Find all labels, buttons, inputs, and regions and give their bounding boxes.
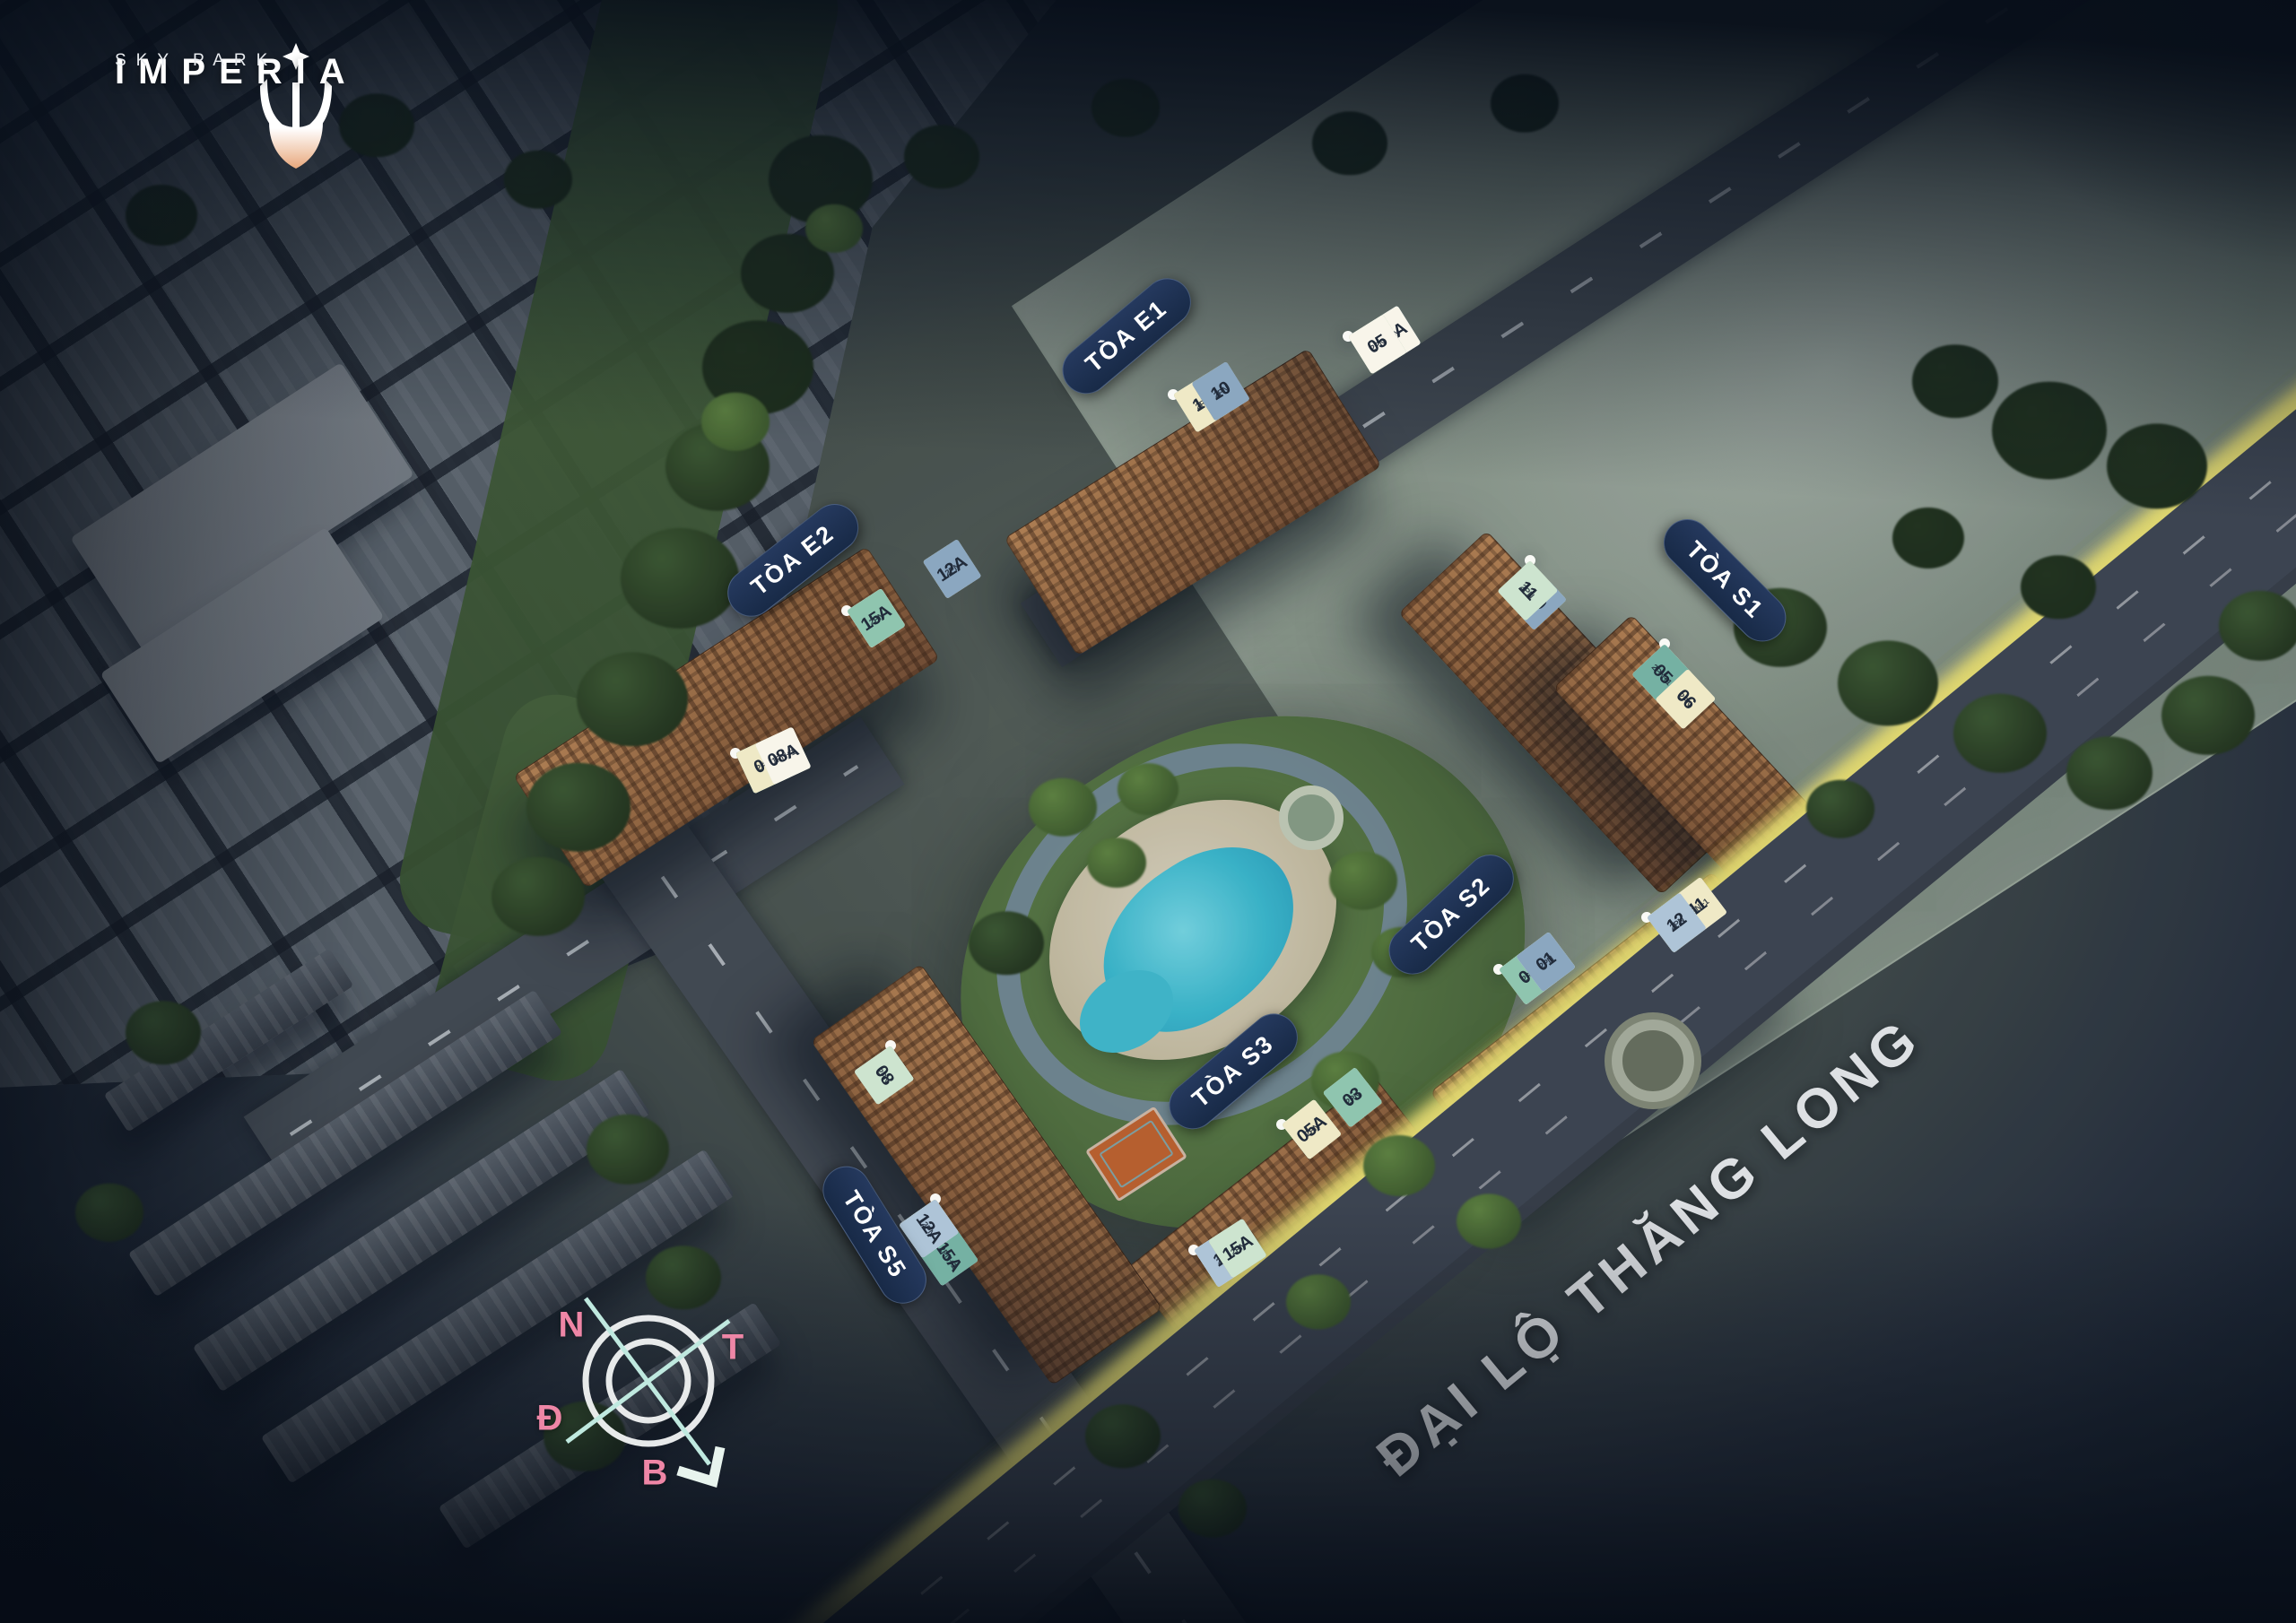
tower-label-S1[interactable]: TÒA S1 <box>1654 509 1796 651</box>
tower-E1-grid-2: 012PN02STU032PN05A2PN092PN082PN+108A1PN+… <box>1341 329 1356 344</box>
unit-grid-overlay: 15A2PN152PN162PN171PN+1182PN12A2PN121PN+… <box>0 0 2296 1623</box>
tower-E2-grid-1: 182PN171PN+1162PN152PN15A2PN102PN11STU12… <box>839 603 855 619</box>
tower-S3-grid-1: 082PN08A1PN+1062PN052PN05A2PN012PN022PN0… <box>1274 1117 1290 1133</box>
unit-S3-03[interactable]: 032PN <box>1322 1067 1382 1128</box>
unit-S5-08[interactable]: 082PN <box>854 1046 914 1105</box>
unit-E2-12A[interactable]: 12A2PN <box>923 539 982 599</box>
tower-label-S2[interactable]: TÒA S2 <box>1379 845 1524 984</box>
masterplan-canvas: ĐẠI LỘ THĂNG LONG IMPERIA SKY PARK <box>0 0 2296 1623</box>
tower-S5-grid-1: 052PN+105A2PN032PN021PN+1012PN+1062PN08A… <box>883 1038 899 1054</box>
tower-E2-grid-2: 05A2PN032PN02STU012PN082PN+1092PN052PN06… <box>728 746 743 760</box>
tower-S2-grid-2: 092PN101PN+1112PN+1162PN152PN15A2PN12AST… <box>1639 910 1655 925</box>
tower-E1-grid-1: 15A2PN152PN162PN171PN+1182PN12A2PN121PN+… <box>1166 387 1181 403</box>
tower-S1-grid-2: 012PN+1021PN+1032PN05A2PN052PN+1082PN08A… <box>1657 637 1673 652</box>
tower-S3-grid-2: 112PN+1101PN+1092PN152PN162PN122PN12ASTU… <box>1187 1243 1202 1258</box>
tower-S2-grid-1: 05A2PN052PN062PN08A1PN+1082PN032PN022PN0… <box>1492 962 1507 977</box>
tower-label-S3[interactable]: TÒA S3 <box>1160 1004 1308 1139</box>
unit-E2-15A[interactable]: 15A2PN <box>847 588 906 648</box>
tower-S1-grid-1: 15A2PN+1151PN+1162PN102PN092PN12A2PN12ST… <box>1523 553 1538 568</box>
unit-S3-05A[interactable]: 05A2PN <box>1282 1099 1342 1160</box>
tower-label-E1[interactable]: TÒA E1 <box>1053 269 1201 404</box>
tower-S5-grid-2: 162PN151PN+115A2PN+1092PN102PN112PN12STU… <box>928 1192 944 1207</box>
